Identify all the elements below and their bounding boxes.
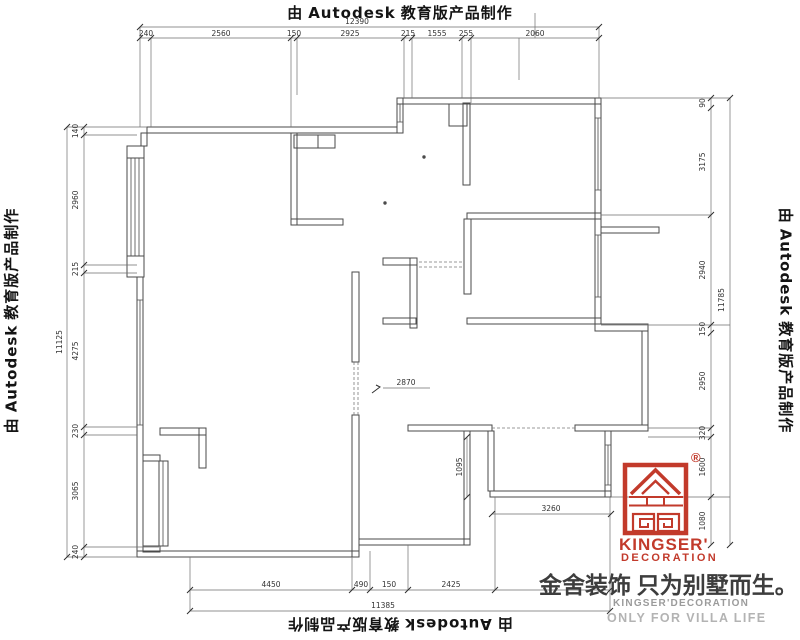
brand-tagline-en: ONLY FOR VILLA LIFE xyxy=(607,611,766,625)
dim-right-seg: 320 xyxy=(698,426,707,441)
dim-top-total: 12390 xyxy=(345,17,369,26)
logo-name-bottom: DECORATION xyxy=(621,552,718,564)
dim-room-length: 3260 xyxy=(541,504,560,513)
dim-top-seg: 2060 xyxy=(525,29,544,38)
dim-top-seg: 240 xyxy=(139,29,154,38)
registered-trademark-icon: ® xyxy=(691,450,701,465)
dim-top-seg: 2925 xyxy=(340,29,359,38)
dim-bottom-seg: 490 xyxy=(354,580,369,589)
dim-bottom-total: 11385 xyxy=(371,601,395,610)
dim-right-seg: 2950 xyxy=(698,371,707,390)
walls xyxy=(127,98,659,557)
dim-right-total: 11785 xyxy=(717,288,726,312)
dim-left-seg: 4275 xyxy=(71,341,80,360)
dim-top-seg: 255 xyxy=(459,29,474,38)
dim-top-seg: 2560 xyxy=(211,29,230,38)
dim-left-seg: 240 xyxy=(71,545,80,560)
dim-bottom-seg: 150 xyxy=(382,580,397,589)
kingser-logo-mark xyxy=(625,465,686,533)
dim-bottom-seg: 2425 xyxy=(441,580,460,589)
dim-left-seg: 215 xyxy=(71,262,80,277)
dim-right-seg: 150 xyxy=(698,322,707,337)
dim-right-seg: 1080 xyxy=(698,511,707,530)
dim-left-seg: 230 xyxy=(71,424,80,439)
dim-top-seg: 215 xyxy=(401,29,416,38)
dim-left-seg: 140 xyxy=(71,124,80,139)
level-mark-value: 2870 xyxy=(396,378,415,387)
dim-bottom-seg: 4450 xyxy=(261,580,280,589)
dim-left-seg: 2960 xyxy=(71,190,80,209)
brand-slogan-cn: 金舍装饰 只为别墅而生。 xyxy=(539,566,798,600)
dim-top-seg: 150 xyxy=(287,29,302,38)
dim-left-seg: 3065 xyxy=(71,481,80,500)
fixture-dots xyxy=(383,155,425,204)
dimension-lines xyxy=(67,13,730,611)
window-lines xyxy=(131,104,611,546)
dim-right-seg: 2940 xyxy=(698,260,707,279)
dim-top-seg: 1555 xyxy=(427,29,446,38)
brand-name-en: KINGSER'DECORATION xyxy=(613,598,749,609)
dim-right-seg: 90 xyxy=(698,98,707,108)
dim-left-total: 11125 xyxy=(55,330,64,354)
dim-right-seg: 3175 xyxy=(698,152,707,171)
dim-room-width: 1095 xyxy=(455,457,464,476)
